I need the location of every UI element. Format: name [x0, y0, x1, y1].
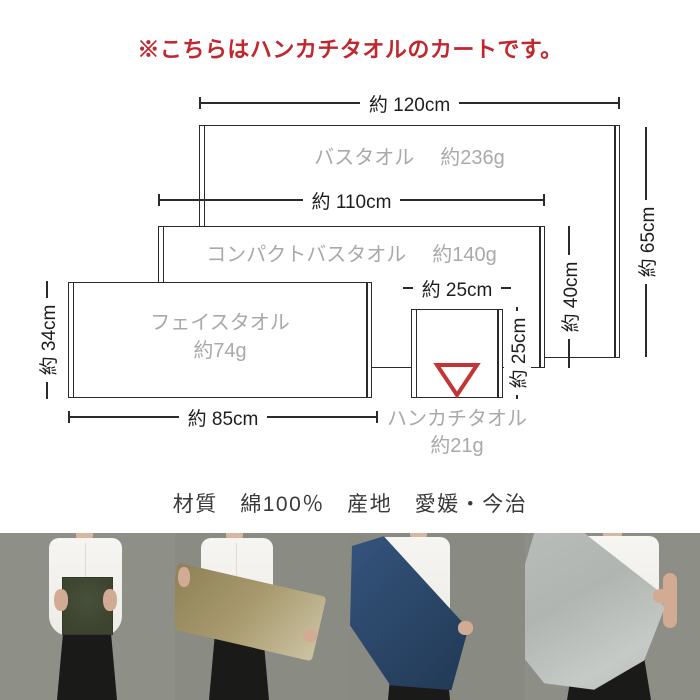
dimension-line: [201, 102, 360, 104]
dimension-label: 約 25cm: [413, 275, 502, 302]
dimension-line: [645, 127, 647, 200]
towel-name: バスタオル: [314, 147, 414, 169]
dimension-line: [46, 281, 48, 298]
dimension-compact-width: 約 110cm: [158, 193, 545, 207]
hem-line: [416, 310, 418, 397]
dimension-tick: [376, 411, 378, 423]
dimension-label: 約 120cm: [360, 90, 459, 117]
photo-compact-bath-towel: [350, 533, 525, 700]
handkerchief-towel-label: ハンカチタオル 約21g: [377, 406, 537, 460]
photo-strip: [0, 533, 700, 700]
material-origin-text: 材質 綿100％ 産地 愛媛・今治: [0, 488, 700, 518]
dimension-line: [400, 199, 543, 201]
dimension-line: [645, 284, 647, 357]
model-hand: [303, 629, 317, 642]
dimension-handkerchief-width: 約 25cm: [403, 279, 511, 297]
model-skirt: [57, 633, 117, 700]
dimension-line: [516, 395, 518, 399]
dimension-line: [160, 199, 303, 201]
dimension-line: [267, 416, 376, 418]
photo-handkerchief-towel: [0, 533, 175, 700]
dimension-tick: [618, 97, 620, 109]
cart-notice-text: ※こちらはハンカチタオルのカートです。: [0, 32, 700, 64]
dimension-face-height: 約 34cm: [38, 281, 56, 399]
dimension-bath-height: 約 65cm: [637, 127, 655, 357]
dimension-tick: [543, 194, 545, 206]
dimension-line: [403, 287, 413, 289]
model-hand: [458, 621, 473, 635]
dimension-label: 約 40cm: [556, 255, 583, 340]
dimension-label: 約 25cm: [504, 311, 531, 396]
dimension-line: [516, 307, 518, 311]
model-hand: [103, 589, 117, 611]
dimension-line: [568, 339, 570, 368]
towel-weight: 約236g: [440, 147, 505, 169]
dimension-bath-width: 約 120cm: [199, 96, 620, 110]
face-towel-label: フェイスタオル 約74g: [69, 309, 371, 365]
dimension-handkerchief-height: 約 25cm: [508, 307, 526, 399]
dimension-line: [70, 416, 179, 418]
dimension-face-width: 約 85cm: [68, 410, 378, 424]
towel-weight: 約140g: [432, 244, 497, 266]
dimension-label: 約 65cm: [633, 200, 660, 285]
towel-name: フェイスタオル: [69, 309, 371, 337]
model-hand: [178, 567, 190, 587]
dimension-label: 約 85cm: [179, 404, 268, 431]
dimension-line: [459, 102, 618, 104]
dimension-line: [46, 382, 48, 399]
towel-name: コンパクトバスタオル: [206, 244, 406, 266]
face-towel-rect: フェイスタオル 約74g: [68, 282, 372, 398]
compact-bath-towel-label: コンパクトバスタオル約140g: [159, 238, 544, 267]
red-triangle-marker-icon: [433, 362, 481, 399]
towel-weight: 約74g: [69, 337, 371, 365]
hem-line: [497, 310, 499, 397]
dimension-compact-height: 約 40cm: [560, 226, 578, 368]
dimension-line: [501, 287, 511, 289]
dimension-label: 約 110cm: [303, 187, 401, 214]
photo-bath-towel: [525, 533, 700, 700]
model-hand: [653, 589, 668, 603]
dimension-line: [568, 226, 570, 255]
dimension-label: 約 34cm: [34, 298, 61, 383]
product-size-infographic: ※こちらはハンカチタオルのカートです。 バスタオル約236g コンパクトバスタオ…: [0, 0, 700, 700]
towel-name: ハンカチタオル: [377, 406, 537, 433]
photo-face-towel: [175, 533, 350, 700]
model-hand: [54, 589, 68, 611]
bath-towel-label: バスタオル約236g: [200, 141, 619, 170]
towel-weight: 約21g: [377, 433, 537, 460]
